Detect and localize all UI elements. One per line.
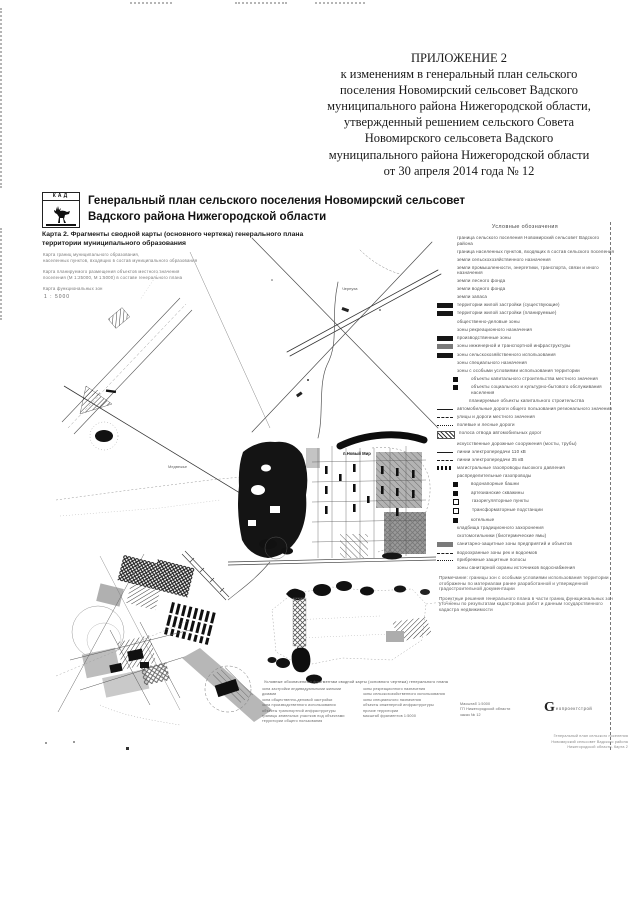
legend-swatch [453,499,459,505]
legend-label: общественно-деловые зоны [457,319,520,325]
legend-label: земли лесного фонда [457,278,505,284]
legend-label: кладбища традиционного захоронения [457,525,544,531]
legend-row: водонапорные башни [435,481,615,487]
pond-shape [95,430,113,442]
legend-swatch [437,409,453,410]
publisher-block: Масштаб 1:5000ГП Нижегородской областиза… [460,702,628,750]
scan-artifact [0,8,2,188]
legend-label: водоохранные зоны рек и водоемов [457,550,537,556]
legend-row: Примечание: границы зон с особыми услови… [435,575,615,592]
legend-label: земли сельскохозяйственного назначения [457,257,551,263]
legend-row: территории жилой застройки (существующие… [435,302,615,308]
legend-swatch [437,431,455,439]
appendix-header: ПРИЛОЖЕНИЕ 2к изменениям в генеральный п… [288,50,630,179]
appendix-line: муниципального района Нижегородской обла… [288,147,630,163]
map-fragment-northwest-strip [62,252,270,434]
legend-label: зоны с особыми условиями использования т… [457,368,580,374]
legend-label: газорегуляторные пункты [472,498,529,504]
legend-row: артезианские скважины [435,490,615,496]
legend-swatch [437,336,453,341]
mini-legend-col2: зоны рекреационного назначениязоны сельс… [363,687,450,725]
legend-row: трансформаторные подстанции [435,507,615,514]
legend-row: автомобильные дороги общего пользования … [435,406,615,412]
legend-row: территории жилой застройки (планируемые) [435,310,615,316]
legend-row: земли промышленности, энергетики, трансп… [435,265,615,276]
legend-row: граница населенных пунктов, входящих в с… [435,249,615,255]
legend-swatch [437,311,453,316]
legend-swatch [453,385,458,390]
legend-label: Примечание: границы зон с особыми услови… [439,575,615,592]
legend-label: производственные зоны [457,335,511,341]
legend-swatch [437,452,453,453]
legend-swatch [437,460,453,461]
legend-row: водоохранные зоны рек и водоемов [435,550,615,556]
legend-row: граница сельского поселения Новомирский … [435,235,615,246]
mini-legend-line: территории общего пользования [262,719,349,724]
map-label-village-ne: Чернуха [342,286,358,291]
legend-swatch [453,518,458,523]
legend-label: территории жилой застройки (существующие… [457,302,560,308]
legend-row: котельные [435,517,615,523]
legend-swatch [437,542,453,547]
legend-label: зоны рекреационного назначения [457,327,532,333]
mini-legend-col1: зона застройки индивидуальными жилыми до… [262,687,349,725]
legend-swatch [437,466,453,470]
legend-swatch [437,344,453,349]
mini-legend-line: масштаб фрагментов 1:5000 [363,714,450,719]
legend-row: земли сельскохозяйственного назначения [435,257,615,263]
fragments-mini-legend: Условные обозначения к фрагментам сводно… [262,680,450,725]
publisher-logo-text: еопроектстрой [556,706,592,711]
legend-label: автомобильные дороги общего пользования … [457,406,612,412]
legend-swatch [453,482,458,487]
legend-label: зоны инженерной и транспортной инфрастру… [457,343,571,349]
legend-row: искусственные дорожные сооружения (мосты… [435,441,615,447]
legend-label: скотомогильники (биотермические ямы) [457,533,546,539]
legend-row: зоны сельскохозяйственного использования [435,352,615,358]
legend-row: земли водного фонда [435,286,615,292]
legend-swatch [437,425,453,426]
legend-row: общественно-деловые зоны [435,319,615,325]
legend-swatch [437,303,453,308]
legend-row: Проектные решения генерального плана в ч… [435,596,615,613]
map-label-locality-w: Медвежье [168,464,188,469]
legend-row: планируемые объекты капитального строите… [435,398,615,404]
legend-row: зоны рекреационного назначения [435,327,615,333]
map-fragment-road-junction: Чернуха [252,238,441,438]
legend-row: объекты социального и культурно-бытового… [435,384,615,395]
legend-label: зоны санитарной охраны источников водосн… [457,565,575,571]
legend-label: граница сельского поселения Новомирский … [457,235,615,246]
legend-row: зоны инженерной и транспортной инфрастру… [435,343,615,349]
legend-row: зоны с особыми условиями использования т… [435,368,615,374]
legend-swatch [437,417,453,418]
legend-row: распределительные газопроводы [435,473,615,479]
appendix-line: к изменениям в генеральный план сельског… [288,66,630,82]
legend-label: котельные [471,517,494,523]
legend-row: прибрежные защитные полосы [435,557,615,563]
legend-row: полевые и лесные дороги [435,422,615,428]
scan-artifact [0,228,2,320]
appendix-line: муниципального района Нижегородской обла… [288,98,630,114]
legend-swatch [453,491,458,496]
legend-row: земли лесного фонда [435,278,615,284]
legend-row: производственные зоны [435,335,615,341]
legend-row: санитарно-защитные зоны предприятий и об… [435,541,615,547]
sheet-right-border [610,222,611,750]
legend-swatch [453,508,459,514]
legend-label: полевые и лесные дороги [457,422,515,428]
legend-swatch [437,560,453,561]
legend-label: земли водного фонда [457,286,505,292]
map-fragment-central-settlement: п.Новый Мир [228,435,436,600]
legend-items: граница сельского поселения Новомирский … [435,235,615,613]
legend-label: граница населенных пунктов, входящих в с… [457,249,614,255]
legend-label: линии электропередачи 110 кВ [457,449,526,455]
legend-label: прибрежные защитные полосы [457,557,526,563]
appendix-line: от 30 апреля 2014 года № 12 [288,163,630,179]
legend-label: трансформаторные подстанции [472,507,543,513]
appendix-line: поселения Новомирский сельсовет Вадского [288,82,630,98]
map-sheet: КАД Генеральный план сельского поселения… [40,190,630,760]
legend-swatch [437,553,453,554]
appendix-line: утвержденный решением сельского Совета [288,114,630,130]
legend-label: магистральные газопроводы высокого давле… [457,465,565,471]
map-fragment-south-center [268,581,461,684]
legend-label: планируемые объекты капитального строите… [469,398,584,404]
document-page: ПРИЛОЖЕНИЕ 2к изменениям в генеральный п… [0,0,640,905]
legend-row: скотомогильники (биотермические ямы) [435,533,615,539]
legend-label: искусственные дорожные сооружения (мосты… [457,441,577,447]
mini-legend-line: зона застройки индивидуальными жилыми до… [262,687,349,698]
mini-legend-heading: Условные обозначения к фрагментам сводно… [262,680,450,684]
legend-label: водонапорные башни [471,481,519,487]
map-fragment-southwest-settlement [56,551,272,725]
appendix-line: Новомирского сельсовета Вадского [288,130,630,146]
legend-label: зоны сельскохозяйственного использования [457,352,556,358]
legend-row: зоны санитарной охраны источников водосн… [435,565,615,571]
legend-swatch [453,377,458,382]
legend-row: полоса отвода автомобильных дорог [435,430,615,439]
legend-label: территории жилой застройки (планируемые) [457,310,556,316]
legend-label: земли запаса [457,294,487,300]
publisher-logo-letter: G [544,702,555,714]
legend-label: санитарно-защитные зоны предприятий и об… [457,541,572,547]
legend-label: Проектные решения генерального плана в ч… [439,596,615,613]
legend-header: Условные обозначения [435,224,615,230]
scan-artifact [130,2,172,4]
legend-swatch [437,353,453,358]
legend-row: зоны специального назначения [435,360,615,366]
scan-artifact [235,2,287,4]
legend-label: объекты капитального строительства местн… [471,376,598,382]
legend-row: линии электропередачи 35 кВ [435,457,615,463]
legend-label: полоса отвода автомобильных дорог [459,430,542,436]
legend-row: магистральные газопроводы высокого давле… [435,465,615,471]
scan-artifact [315,2,365,4]
legend-row: газорегуляторные пункты [435,498,615,505]
appendix-line: ПРИЛОЖЕНИЕ 2 [288,50,630,66]
legend-label: артезианские скважины [471,490,524,496]
legend-label: улицы и дороги местного значения [457,414,535,420]
legend-row: объекты капитального строительства местн… [435,376,615,382]
legend-label: объекты социального и культурно-бытового… [471,384,615,395]
legend-row: земли запаса [435,294,615,300]
publisher-logo: G еопроектстрой [544,702,592,714]
legend-label: земли промышленности, энергетики, трансп… [457,265,615,276]
legend-label: зоны специального назначения [457,360,527,366]
legend-row: улицы и дороги местного значения [435,414,615,420]
legend-label: линии электропередачи 35 кВ [457,457,524,463]
legend-row: линии электропередачи 110 кВ [435,449,615,455]
map-label-settlement: п.Новый Мир [343,451,371,456]
legend-label: распределительные газопроводы [457,473,531,479]
map-legend: Условные обозначения граница сельского п… [435,224,615,615]
legend-row: кладбища традиционного захоронения [435,525,615,531]
